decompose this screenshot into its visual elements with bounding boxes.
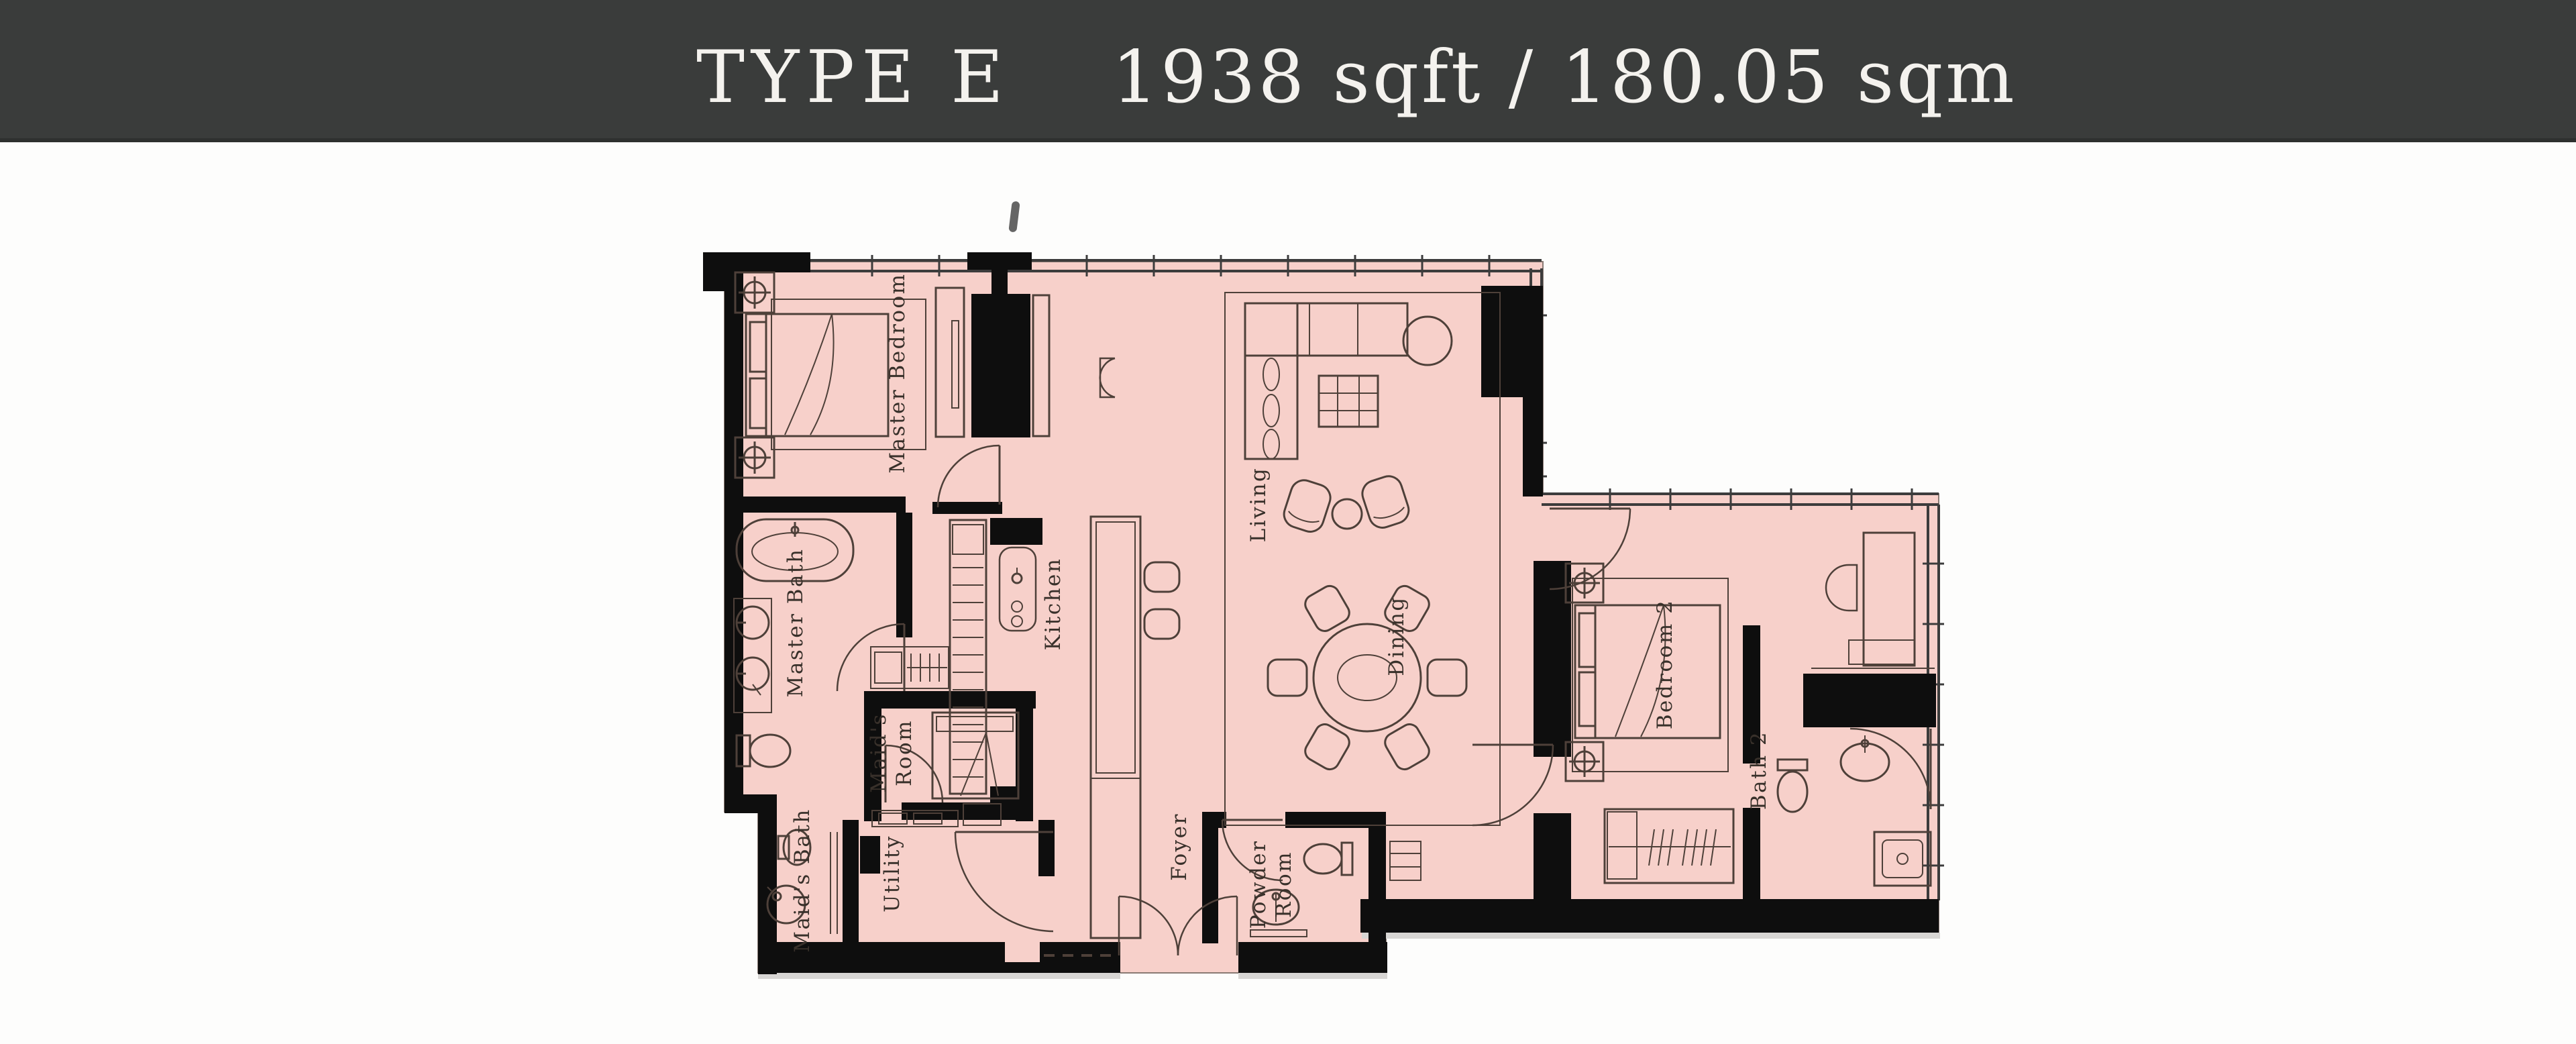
header-bottom-edge [0, 138, 2576, 142]
unit-area-title: 1938 sqft / 180.05 sqm [1112, 36, 2017, 119]
wall-notch [1005, 942, 1040, 962]
header-band: TYPE E 1938 sqft / 180.05 sqm [0, 0, 2576, 142]
room-label-foyer: Foyer [1167, 813, 1191, 881]
room-label-bedroom-2: Bedroom 2 [1653, 599, 1677, 730]
room-label-dining: Dining [1385, 596, 1409, 676]
room-label-maids-room-line1: Maid's [867, 713, 891, 792]
room-label-maids-room-line2: Room [892, 719, 916, 786]
room-label-powder-room-line1: Powder [1246, 840, 1271, 929]
room-label-kitchen: Kitchen [1041, 558, 1065, 651]
room-label-powder-room-line2: Room [1272, 851, 1296, 918]
room-label-master-bath: Master Bath [784, 548, 808, 698]
room-label-master-bedroom: Master Bedroom [885, 272, 910, 473]
room-label-living: Living [1246, 467, 1271, 543]
room-label-maids-bath: Maid's Bath [790, 808, 814, 952]
unit-type-title: TYPE E [696, 36, 1010, 119]
floor-plan-sheet: TYPE E 1938 sqft / 180.05 sqm [0, 0, 2576, 1044]
room-label-utility: Utility [880, 835, 904, 912]
room-label-bath-2: Bath 2 [1747, 731, 1771, 810]
